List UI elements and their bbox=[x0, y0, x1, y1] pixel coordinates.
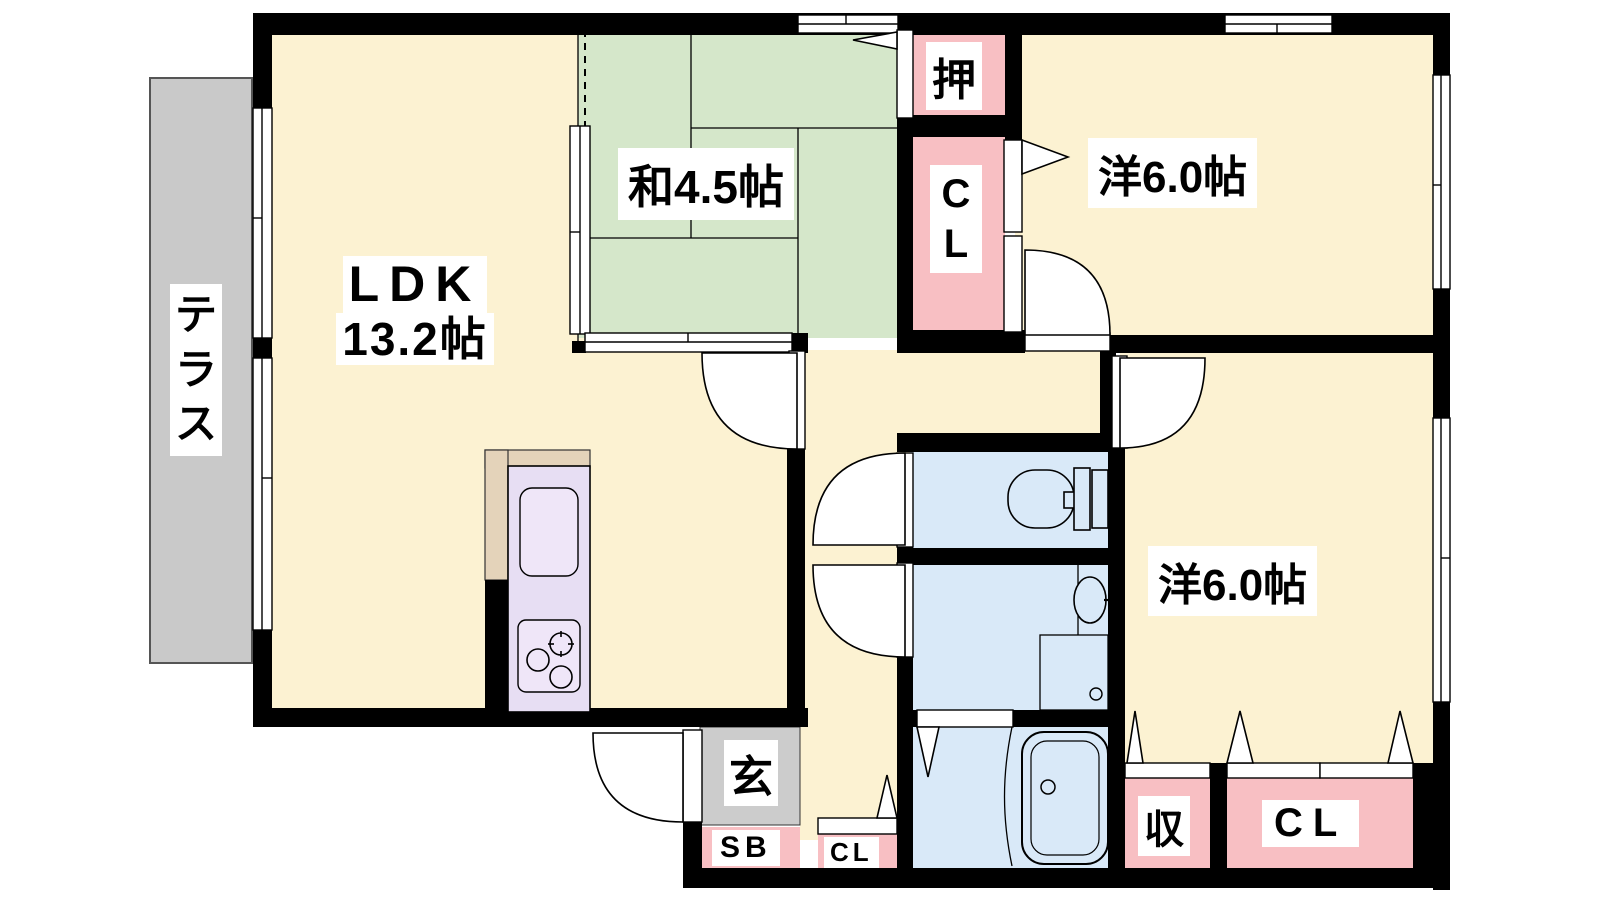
hall-closet-track bbox=[818, 818, 897, 834]
bathroom-door bbox=[917, 710, 1013, 727]
entrance-label: 玄 bbox=[724, 740, 778, 806]
shoe-box-label: SB bbox=[712, 830, 780, 866]
terrace-label: テラス bbox=[170, 284, 222, 456]
bathtub bbox=[1022, 732, 1108, 864]
right-closet-track-2 bbox=[1320, 763, 1413, 778]
right-closet-track-1 bbox=[1227, 763, 1320, 778]
oshiire-fusuma-door bbox=[897, 30, 913, 118]
western-right-label: 洋6.0帖 bbox=[1148, 546, 1317, 616]
door-leaf-entrance bbox=[683, 730, 702, 822]
door-leaf-closet-upper bbox=[1004, 140, 1022, 232]
ldk-label: LDK 13.2帖 bbox=[305, 256, 525, 365]
floor-plan-drawing bbox=[0, 0, 1600, 900]
closet-upper-label: CL bbox=[930, 165, 982, 273]
western-top-label: 洋6.0帖 bbox=[1088, 138, 1257, 208]
washitsu-label: 和4.5帖 bbox=[618, 148, 794, 220]
toilet-fixture bbox=[1008, 468, 1108, 530]
kitchen-unit bbox=[485, 450, 590, 712]
entrance-door-swing bbox=[593, 733, 683, 822]
storage-track bbox=[1125, 763, 1210, 778]
kitchen-sink bbox=[520, 488, 578, 576]
hall-closet-label: CL bbox=[824, 837, 879, 868]
floor-plan: LDK 13.2帖 和4.5帖 洋6.0帖 洋6.0帖 押 CL テラス 玄 S… bbox=[0, 0, 1600, 900]
washbasin bbox=[1074, 577, 1106, 623]
storage-label: 収 bbox=[1138, 796, 1190, 856]
ldk-area: 13.2帖 bbox=[336, 313, 494, 365]
wall-bottom bbox=[683, 868, 1450, 888]
washing-machine-pan bbox=[1040, 635, 1108, 710]
ldk-name: LDK bbox=[343, 256, 488, 313]
right-closet-label: CL bbox=[1262, 800, 1359, 847]
oshiire-label: 押 bbox=[926, 42, 982, 110]
